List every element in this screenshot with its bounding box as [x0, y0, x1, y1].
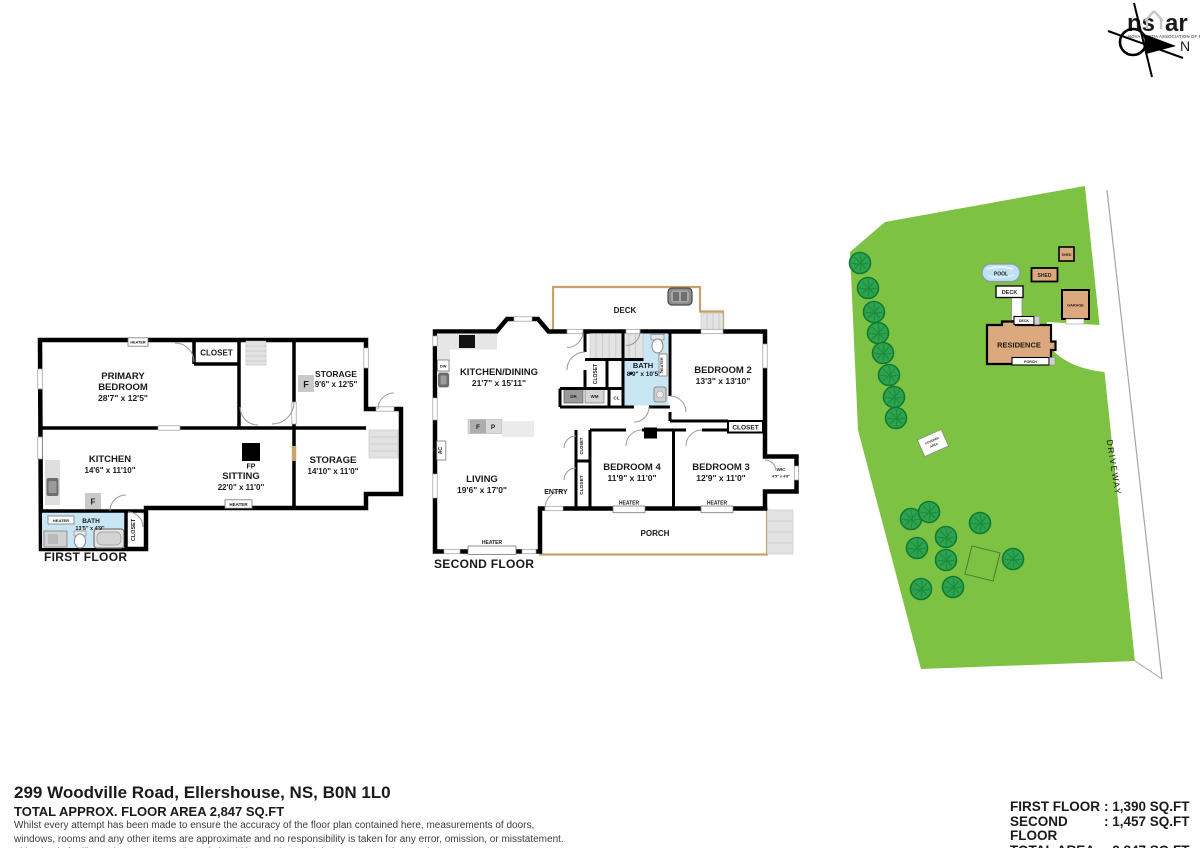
- ff-storage1-name: STORAGE: [315, 369, 357, 379]
- ff-fireplace: [242, 443, 260, 461]
- summary-label-first-floor: FIRST FLOOR: [1010, 800, 1104, 815]
- sf-chimney: [644, 428, 657, 439]
- shed-small-label: SHED: [1062, 253, 1072, 257]
- sf-kitchen-dining-dims: 21'7" x 15'11": [472, 378, 526, 388]
- sf-entry-closet2-label: CLOSET: [579, 475, 585, 495]
- sf-bedroom3-dims: 12'9" x 11'0": [696, 473, 745, 483]
- ff-heater-label-1: HEATER: [130, 341, 146, 345]
- sf-p-label: P: [491, 424, 496, 431]
- sf-bath-dims: 8'9" x 10'5": [627, 371, 662, 378]
- ff-fp-label: FP: [247, 464, 256, 471]
- sf-entry-closet1-label: CLOSET: [579, 437, 584, 454]
- sf-wm-label: WM: [591, 394, 599, 399]
- sf-porch: PORCH: [540, 509, 793, 555]
- pool-label: POOL: [994, 272, 1008, 278]
- sf-counter-ext: [502, 421, 534, 437]
- ff-primary-bedroom-dims: 28'7" x 12'5": [98, 393, 148, 403]
- sf-porch-label: PORCH: [641, 529, 670, 538]
- shed-small: SHED: [1059, 247, 1074, 261]
- sf-dr-label: DR: [570, 394, 577, 399]
- ff-kitchen-f-label: F: [91, 498, 96, 507]
- ff-bath-name: BATH: [82, 518, 100, 525]
- nsar-logo: ns ar NOVA SCOTIA ASSOCIATION OF REALTOR…: [1127, 10, 1200, 39]
- sf-wic-name: WIC: [777, 467, 786, 472]
- ff-storage1-dims: 9'6" x 12'5": [315, 380, 358, 389]
- ff-bath-dims: 13'5" x 4'9": [75, 526, 105, 532]
- summary-value-second-floor: : 1,457 SQ.FT: [1104, 815, 1190, 844]
- garage: GARAGE: [1062, 290, 1089, 324]
- shed-large: SHED: [1032, 268, 1058, 282]
- ff-heater-label-2: HEATER: [229, 502, 248, 507]
- sf-heater-living: HEATER: [482, 540, 503, 546]
- sf-stair-closet-label: CLOSET: [593, 364, 599, 384]
- sf-bedroom4-dims: 11'9" x 11'0": [608, 473, 657, 483]
- sf-living-dims: 19'6" x 17'0": [457, 485, 507, 495]
- sf-bath-name: BATH: [633, 361, 653, 370]
- sf-wic-dims: 4'5" x 4'8": [772, 475, 790, 479]
- sf-deck: DECK: [553, 287, 723, 332]
- second-floor-title: SECOND FLOOR: [434, 557, 534, 571]
- residence-porch-label: PORCH: [1024, 360, 1037, 364]
- pool: POOL: [982, 264, 1020, 282]
- ff-bath-closet-label: CLOSET: [131, 518, 137, 541]
- site-plan: COVERED AREA POOL DECK SHED SHED GARAGE: [840, 180, 1170, 688]
- upper-deck-label: DECK: [1002, 290, 1018, 296]
- logo-text-ar: ar: [1165, 10, 1188, 37]
- sf-bedroom2-dims: 13'3" x 13'10": [696, 376, 751, 386]
- ff-wall-opening: [292, 446, 296, 461]
- north-label: N: [1180, 38, 1190, 54]
- property-address: 299 Woodville Road, Ellershouse, NS, B0N…: [14, 783, 391, 803]
- sf-bedroom2-name: BEDROOM 2: [694, 365, 752, 376]
- ff-storage-f-label: F: [303, 380, 309, 390]
- sf-living-name: LIVING: [466, 474, 498, 485]
- garage-label: GARAGE: [1067, 304, 1084, 308]
- ff-kitchen-dims: 14'6" x 11'10": [85, 466, 136, 475]
- sf-kitchen-dining-name: KITCHEN/DINING: [460, 367, 538, 378]
- summary-label-second-floor: SECOND FLOOR: [1010, 815, 1104, 844]
- residence-deck-label: DECK: [1019, 319, 1029, 323]
- sf-toilet: [652, 339, 663, 353]
- sf-stairs: [590, 334, 643, 359]
- sf-entry-label: ENTRY: [544, 489, 568, 496]
- ff-storage2-name: STORAGE: [310, 455, 357, 466]
- sf-stove: [459, 335, 475, 348]
- sf-dw-label: DW: [440, 363, 447, 368]
- disclaimer: Whilst every attempt has been made to en…: [14, 819, 564, 848]
- ff-sitting-dims: 22'0" x 11'0": [218, 483, 265, 492]
- total-floor-area-line: TOTAL APPROX. FLOOR AREA 2,847 SQ.FT: [14, 804, 284, 819]
- summary-value-total-area: : 2,847 SQ.FT: [1104, 844, 1190, 848]
- ff-toilet: [75, 534, 86, 548]
- summary-label-total-area: TOTAL AREA: [1010, 844, 1104, 848]
- sf-bedroom4-name: BEDROOM 4: [603, 462, 661, 473]
- ff-primary-bedroom-name1: PRIMARY: [101, 371, 145, 382]
- ff-closet-label: CLOSET: [200, 349, 233, 358]
- disclaimer-line-1: Whilst every attempt has been made to en…: [14, 819, 564, 833]
- ff-storage2-dims: 14'10" x 11'0": [308, 467, 359, 476]
- sf-deck-label: DECK: [614, 306, 637, 315]
- first-floor-title: FIRST FLOOR: [44, 550, 127, 564]
- second-floor-plan: DECK PORCH DW F P: [430, 278, 802, 576]
- ff-sitting-name: SITTING: [222, 471, 259, 482]
- ff-primary-bedroom-name2: BEDROOM: [98, 382, 148, 393]
- residence-label: RESIDENCE: [997, 341, 1041, 350]
- ff-kitchen-name: KITCHEN: [89, 454, 131, 465]
- floorplan-sheet: ns ar NOVA SCOTIA ASSOCIATION OF REALTOR…: [0, 0, 1200, 848]
- first-floor-plan: HEATER HEATER HEATER PRIMARY BEDROOM 28'…: [36, 334, 408, 566]
- sf-bedroom3-name: BEDROOM 3: [692, 462, 750, 473]
- disclaimer-line-2: windows, rooms and any other items are a…: [14, 833, 564, 847]
- area-summary: FIRST FLOOR : 1,390 SQ.FT SECOND FLOOR :…: [1010, 800, 1190, 848]
- sf-ac-label: AC: [438, 447, 444, 455]
- summary-value-first-floor: : 1,390 SQ.FT: [1104, 800, 1190, 815]
- ff-heater-label-3: HEATER: [53, 518, 69, 523]
- sf-f-label: F: [476, 424, 480, 431]
- compass-and-logo: ns ar NOVA SCOTIA ASSOCIATION OF REALTOR…: [1108, 2, 1200, 80]
- sf-bedroom2-closet: CLOSET: [728, 421, 763, 433]
- sf-bedroom2-closet-label: CLOSET: [732, 425, 758, 432]
- sf-cl-label: CL: [614, 396, 620, 401]
- shed-large-label: SHED: [1038, 273, 1052, 279]
